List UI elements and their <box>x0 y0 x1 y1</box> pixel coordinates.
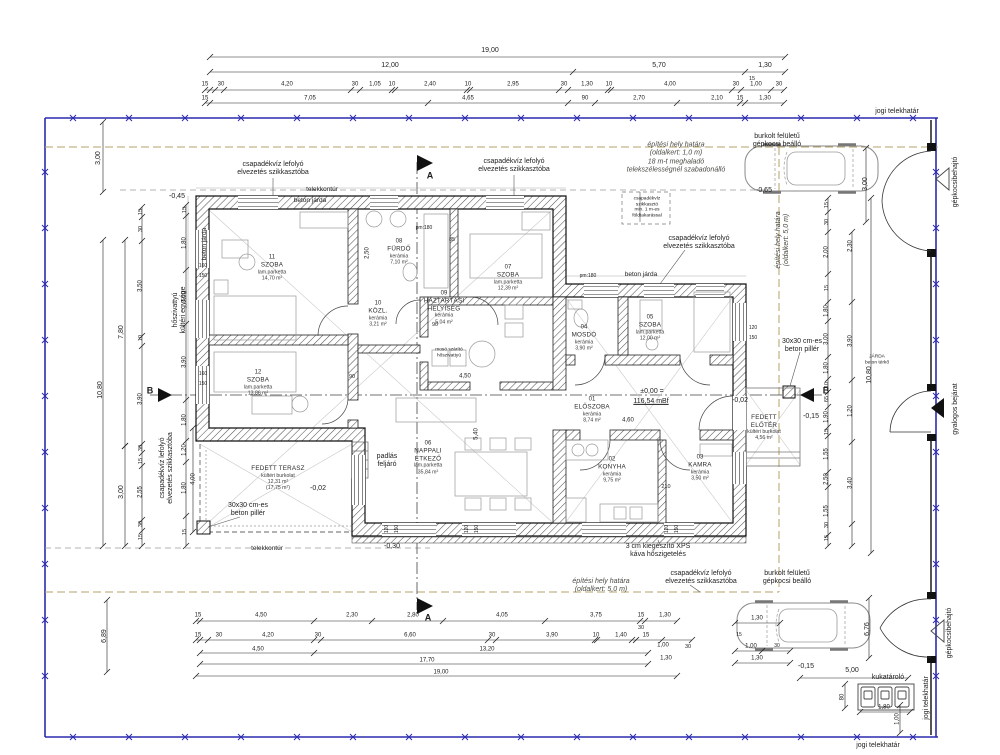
roof-diagonals <box>200 210 800 532</box>
floor-plan-canvas: jogi telekhatárjogi telekhatárjogi telek… <box>0 0 1000 755</box>
waste-bins <box>858 684 914 710</box>
vehicle-gate-north <box>882 151 931 251</box>
parked-car-north <box>745 145 878 193</box>
section-markers <box>158 155 814 614</box>
legal-boundary-lines <box>45 118 938 737</box>
terrace-pillar <box>197 521 210 534</box>
vehicle-gate-south <box>880 599 931 657</box>
pedestrian-gate <box>890 391 931 432</box>
plan-drawing <box>0 0 1000 755</box>
xps-strip <box>352 537 746 543</box>
interior-walls <box>209 209 733 523</box>
gate-direction-arrows <box>931 168 949 642</box>
parked-car-south <box>737 602 870 650</box>
